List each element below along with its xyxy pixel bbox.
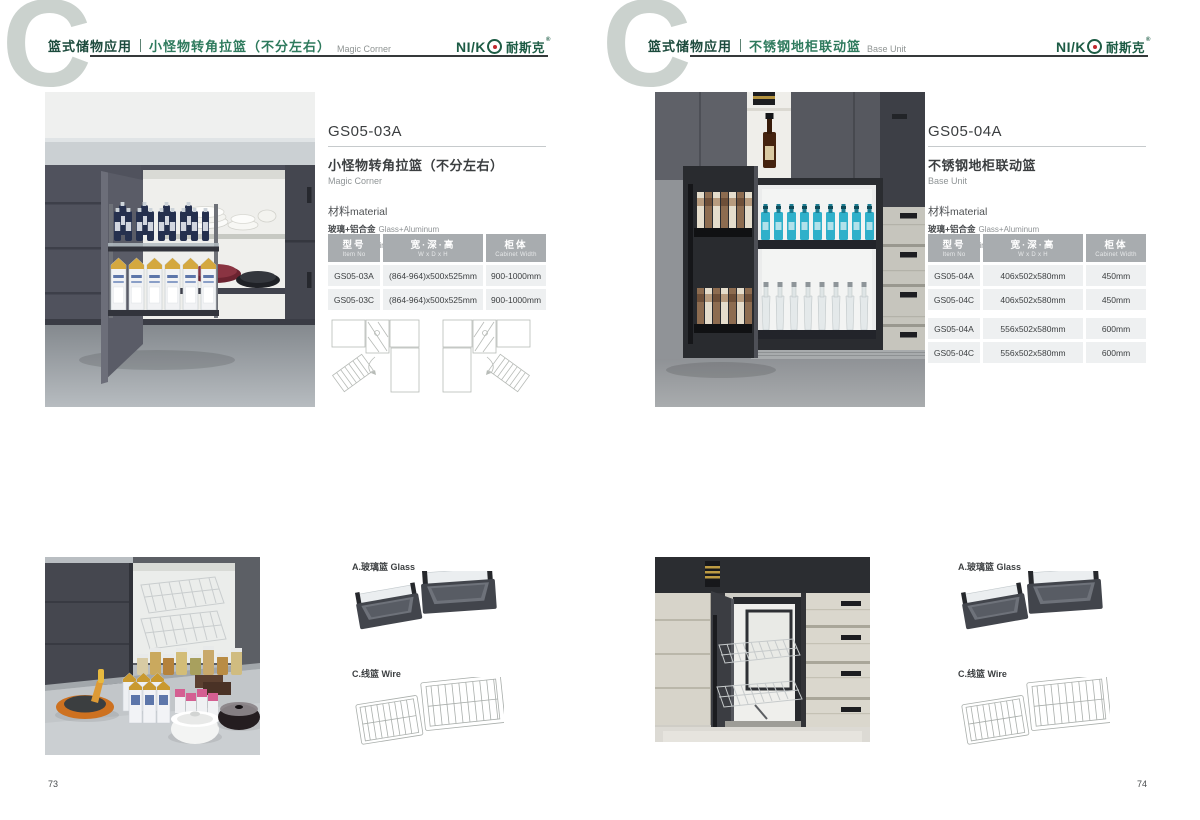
header-cn: 柜体 <box>1086 237 1146 251</box>
glass-basket-icon <box>958 571 1103 643</box>
glass-basket-label: A.玻璃篮 Glass <box>958 560 1021 573</box>
table-row: GS05-04C 556x502x580mm 600mm <box>928 342 1146 363</box>
table-header-cell: 宽·深·高W x D x H <box>383 234 483 262</box>
cell-dimensions: 406x502x580mm <box>983 265 1083 286</box>
header-en: Cabinet Width <box>1086 252 1146 258</box>
cell-item-no: GS05-03C <box>328 289 380 310</box>
cell-item-no: GS05-04C <box>928 342 980 363</box>
main-product-photo <box>45 92 315 407</box>
header-title-en: Magic Corner <box>337 44 391 55</box>
wire-basket-icon <box>958 677 1110 752</box>
header-divider <box>140 39 141 52</box>
logo-cn-text: 耐斯克 <box>1106 37 1145 56</box>
glass-basket-icon <box>352 571 497 643</box>
header-en: Item No <box>328 252 380 258</box>
nisko-logo: NI/K 耐斯克 ® <box>456 37 550 56</box>
table-header-row: 型号Item No 宽·深·高W x D x H 柜体Cabinet Width <box>328 234 546 262</box>
header-category: 篮式储物应用 <box>648 36 732 55</box>
table-row: GS05-03C (864-964)x500x525mm 900-1000mm <box>328 289 546 310</box>
header-en: W x D x H <box>383 252 483 258</box>
cell-dimensions: 406x502x580mm <box>983 289 1083 310</box>
logo-latin-text: NI/K <box>456 39 486 55</box>
base-unit-photo <box>655 92 925 407</box>
cell-item-no: GS05-04A <box>928 265 980 286</box>
corner-diagram-right-icon <box>439 317 531 395</box>
logo-cn-text: 耐斯克 <box>506 37 545 56</box>
material-label-en: material <box>350 206 387 218</box>
cell-cabinet-width: 600mm <box>1086 318 1146 339</box>
logo-latin-text: NI/K <box>1056 39 1086 55</box>
dimension-diagrams <box>331 317 531 395</box>
page-header: 篮式储物应用 不锈钢地柜联动篮 Base Unit <box>648 36 906 55</box>
catalog-page-right: C 篮式储物应用 不锈钢地柜联动篮 Base Unit NI/K 耐斯克 ® <box>600 0 1200 820</box>
wire-corner-photo <box>45 557 260 755</box>
magic-corner-photo <box>45 92 315 407</box>
registered-mark: ® <box>546 37 550 43</box>
cell-dimensions: 556x502x580mm <box>983 318 1083 339</box>
product-code: GS05-03A <box>328 123 546 147</box>
corner-diagram-left-icon <box>331 317 423 395</box>
page-number: 74 <box>1137 779 1147 789</box>
cell-item-no: GS05-04A <box>928 318 980 339</box>
table-header-cell: 柜体Cabinet Width <box>1086 234 1146 262</box>
header-cn: 型号 <box>328 237 380 251</box>
material-cn: 玻璃+铝合金 <box>928 224 975 234</box>
cell-dimensions: (864-964)x500x525mm <box>383 265 483 286</box>
table-row: GS05-04C 406x502x580mm 450mm <box>928 289 1146 310</box>
detail-photo <box>655 557 870 742</box>
table-row: GS05-04A 406x502x580mm 450mm <box>928 265 1146 286</box>
cell-cabinet-width: 900-1000mm <box>486 265 546 286</box>
product-name-en: Magic Corner <box>328 176 546 186</box>
glass-basket-label: A.玻璃篮 Glass <box>352 560 415 573</box>
page-header: 篮式储物应用 小怪物转角拉篮（不分左右） Magic Corner <box>48 36 391 55</box>
page-number: 73 <box>48 779 58 789</box>
product-name-cn: 小怪物转角拉篮（不分左右） <box>328 155 546 174</box>
table-row: GS05-04A 556x502x580mm 600mm <box>928 318 1146 339</box>
base-unit-wire-photo <box>655 557 870 742</box>
header-en: W x D x H <box>983 252 1083 258</box>
product-info: GS05-03A 小怪物转角拉篮（不分左右） Magic Corner 材料ma… <box>328 123 546 251</box>
table-header-cell: 柜体Cabinet Width <box>486 234 546 262</box>
material-label-en: material <box>950 206 987 218</box>
header-title-en: Base Unit <box>867 44 906 55</box>
material-cn: 玻璃+铝合金 <box>328 224 375 234</box>
logo-o-icon <box>487 39 502 54</box>
header-category: 篮式储物应用 <box>48 36 132 55</box>
header-en: Cabinet Width <box>486 252 546 258</box>
header-cn: 型号 <box>928 237 980 251</box>
wire-basket-thumbs <box>958 677 1110 757</box>
product-name-cn: 不锈钢地柜联动篮 <box>928 155 1146 174</box>
cell-dimensions: (864-964)x500x525mm <box>383 289 483 310</box>
cell-item-no: GS05-04C <box>928 289 980 310</box>
cell-cabinet-width: 600mm <box>1086 342 1146 363</box>
material-en: Glass+Aluminum <box>378 225 439 234</box>
spec-table: 型号Item No 宽·深·高W x D x H 柜体Cabinet Width… <box>928 234 1146 363</box>
header-cn: 宽·深·高 <box>983 237 1083 251</box>
header-cn: 宽·深·高 <box>383 237 483 251</box>
product-info: GS05-04A 不锈钢地柜联动篮 Base Unit 材料material 玻… <box>928 123 1146 251</box>
header-title-cn: 不锈钢地柜联动篮 <box>749 36 861 55</box>
table-header-cell: 型号Item No <box>928 234 980 262</box>
spec-table: 型号Item No 宽·深·高W x D x H 柜体Cabinet Width… <box>328 234 546 310</box>
glass-basket-thumbs <box>352 571 497 648</box>
product-name-en: Base Unit <box>928 176 1146 186</box>
table-header-cell: 型号Item No <box>328 234 380 262</box>
material-label-cn: 材料 <box>328 206 350 218</box>
material-label: 材料material <box>328 203 546 219</box>
header-title-cn: 小怪物转角拉篮（不分左右） <box>149 36 331 55</box>
detail-photo <box>45 557 260 755</box>
nisko-logo: NI/K 耐斯克 ® <box>1056 37 1150 56</box>
catalog-page-left: C 篮式储物应用 小怪物转角拉篮（不分左右） Magic Corner NI/K… <box>0 0 600 820</box>
logo-o-icon <box>1087 39 1102 54</box>
wire-basket-icon <box>352 677 504 752</box>
table-header-row: 型号Item No 宽·深·高W x D x H 柜体Cabinet Width <box>928 234 1146 262</box>
cell-cabinet-width: 900-1000mm <box>486 289 546 310</box>
material-en: Glass+Aluminum <box>978 225 1039 234</box>
registered-mark: ® <box>1146 37 1150 43</box>
cell-dimensions: 556x502x580mm <box>983 342 1083 363</box>
cell-item-no: GS05-03A <box>328 265 380 286</box>
material-label-cn: 材料 <box>928 206 950 218</box>
table-row: GS05-03A (864-964)x500x525mm 900-1000mm <box>328 265 546 286</box>
cell-cabinet-width: 450mm <box>1086 289 1146 310</box>
glass-basket-thumbs <box>958 571 1103 648</box>
table-header-cell: 宽·深·高W x D x H <box>983 234 1083 262</box>
material-label: 材料material <box>928 203 1146 219</box>
cell-cabinet-width: 450mm <box>1086 265 1146 286</box>
main-product-photo <box>655 92 925 407</box>
wire-basket-label: C.线篮 Wire <box>958 667 1007 680</box>
header-divider <box>740 39 741 52</box>
wire-basket-thumbs <box>352 677 504 757</box>
product-code: GS05-04A <box>928 123 1146 147</box>
header-en: Item No <box>928 252 980 258</box>
header-cn: 柜体 <box>486 237 546 251</box>
wire-basket-label: C.线篮 Wire <box>352 667 401 680</box>
